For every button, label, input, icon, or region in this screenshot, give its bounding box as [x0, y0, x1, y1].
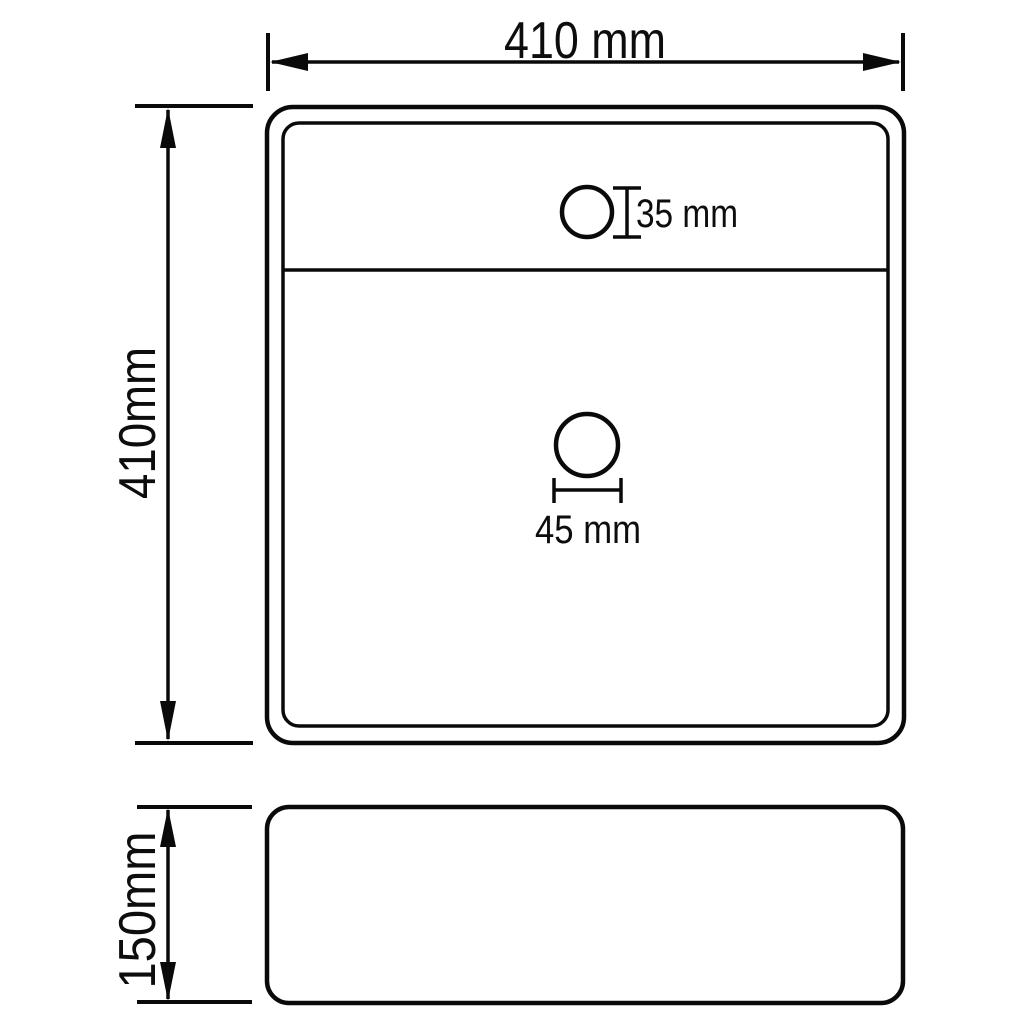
width-dimension-left-arrow — [270, 53, 308, 71]
side-view — [267, 807, 903, 1003]
faucet-hole-label: 35 mm — [636, 192, 738, 236]
faucet-hole-circle — [562, 187, 612, 237]
height-dimension-label: 150mm — [109, 832, 167, 989]
top-view: 35 mm 45 mm — [267, 107, 904, 743]
width-dimension-label: 410 mm — [504, 12, 666, 70]
depth-dimension: 410mm — [109, 106, 253, 743]
drain-hole-circle — [556, 414, 618, 476]
diagram-svg: 35 mm 45 mm 410 mm — [0, 0, 1024, 1024]
height-dimension: 150mm — [109, 807, 252, 1002]
washbasin-dimension-diagram: 35 mm 45 mm 410 mm — [0, 0, 1024, 1024]
width-dimension: 410 mm — [268, 12, 903, 91]
depth-dimension-up-arrow — [160, 108, 176, 148]
width-dimension-right-arrow — [863, 53, 901, 71]
basin-inner-rim — [283, 123, 888, 726]
basin-side-profile — [267, 807, 903, 1003]
depth-dimension-down-arrow — [160, 701, 176, 741]
drain-hole-label: 45 mm — [535, 508, 641, 552]
depth-dimension-label: 410mm — [109, 347, 167, 499]
basin-outer-edge — [267, 107, 904, 743]
drain-hole-dimension — [554, 478, 621, 503]
